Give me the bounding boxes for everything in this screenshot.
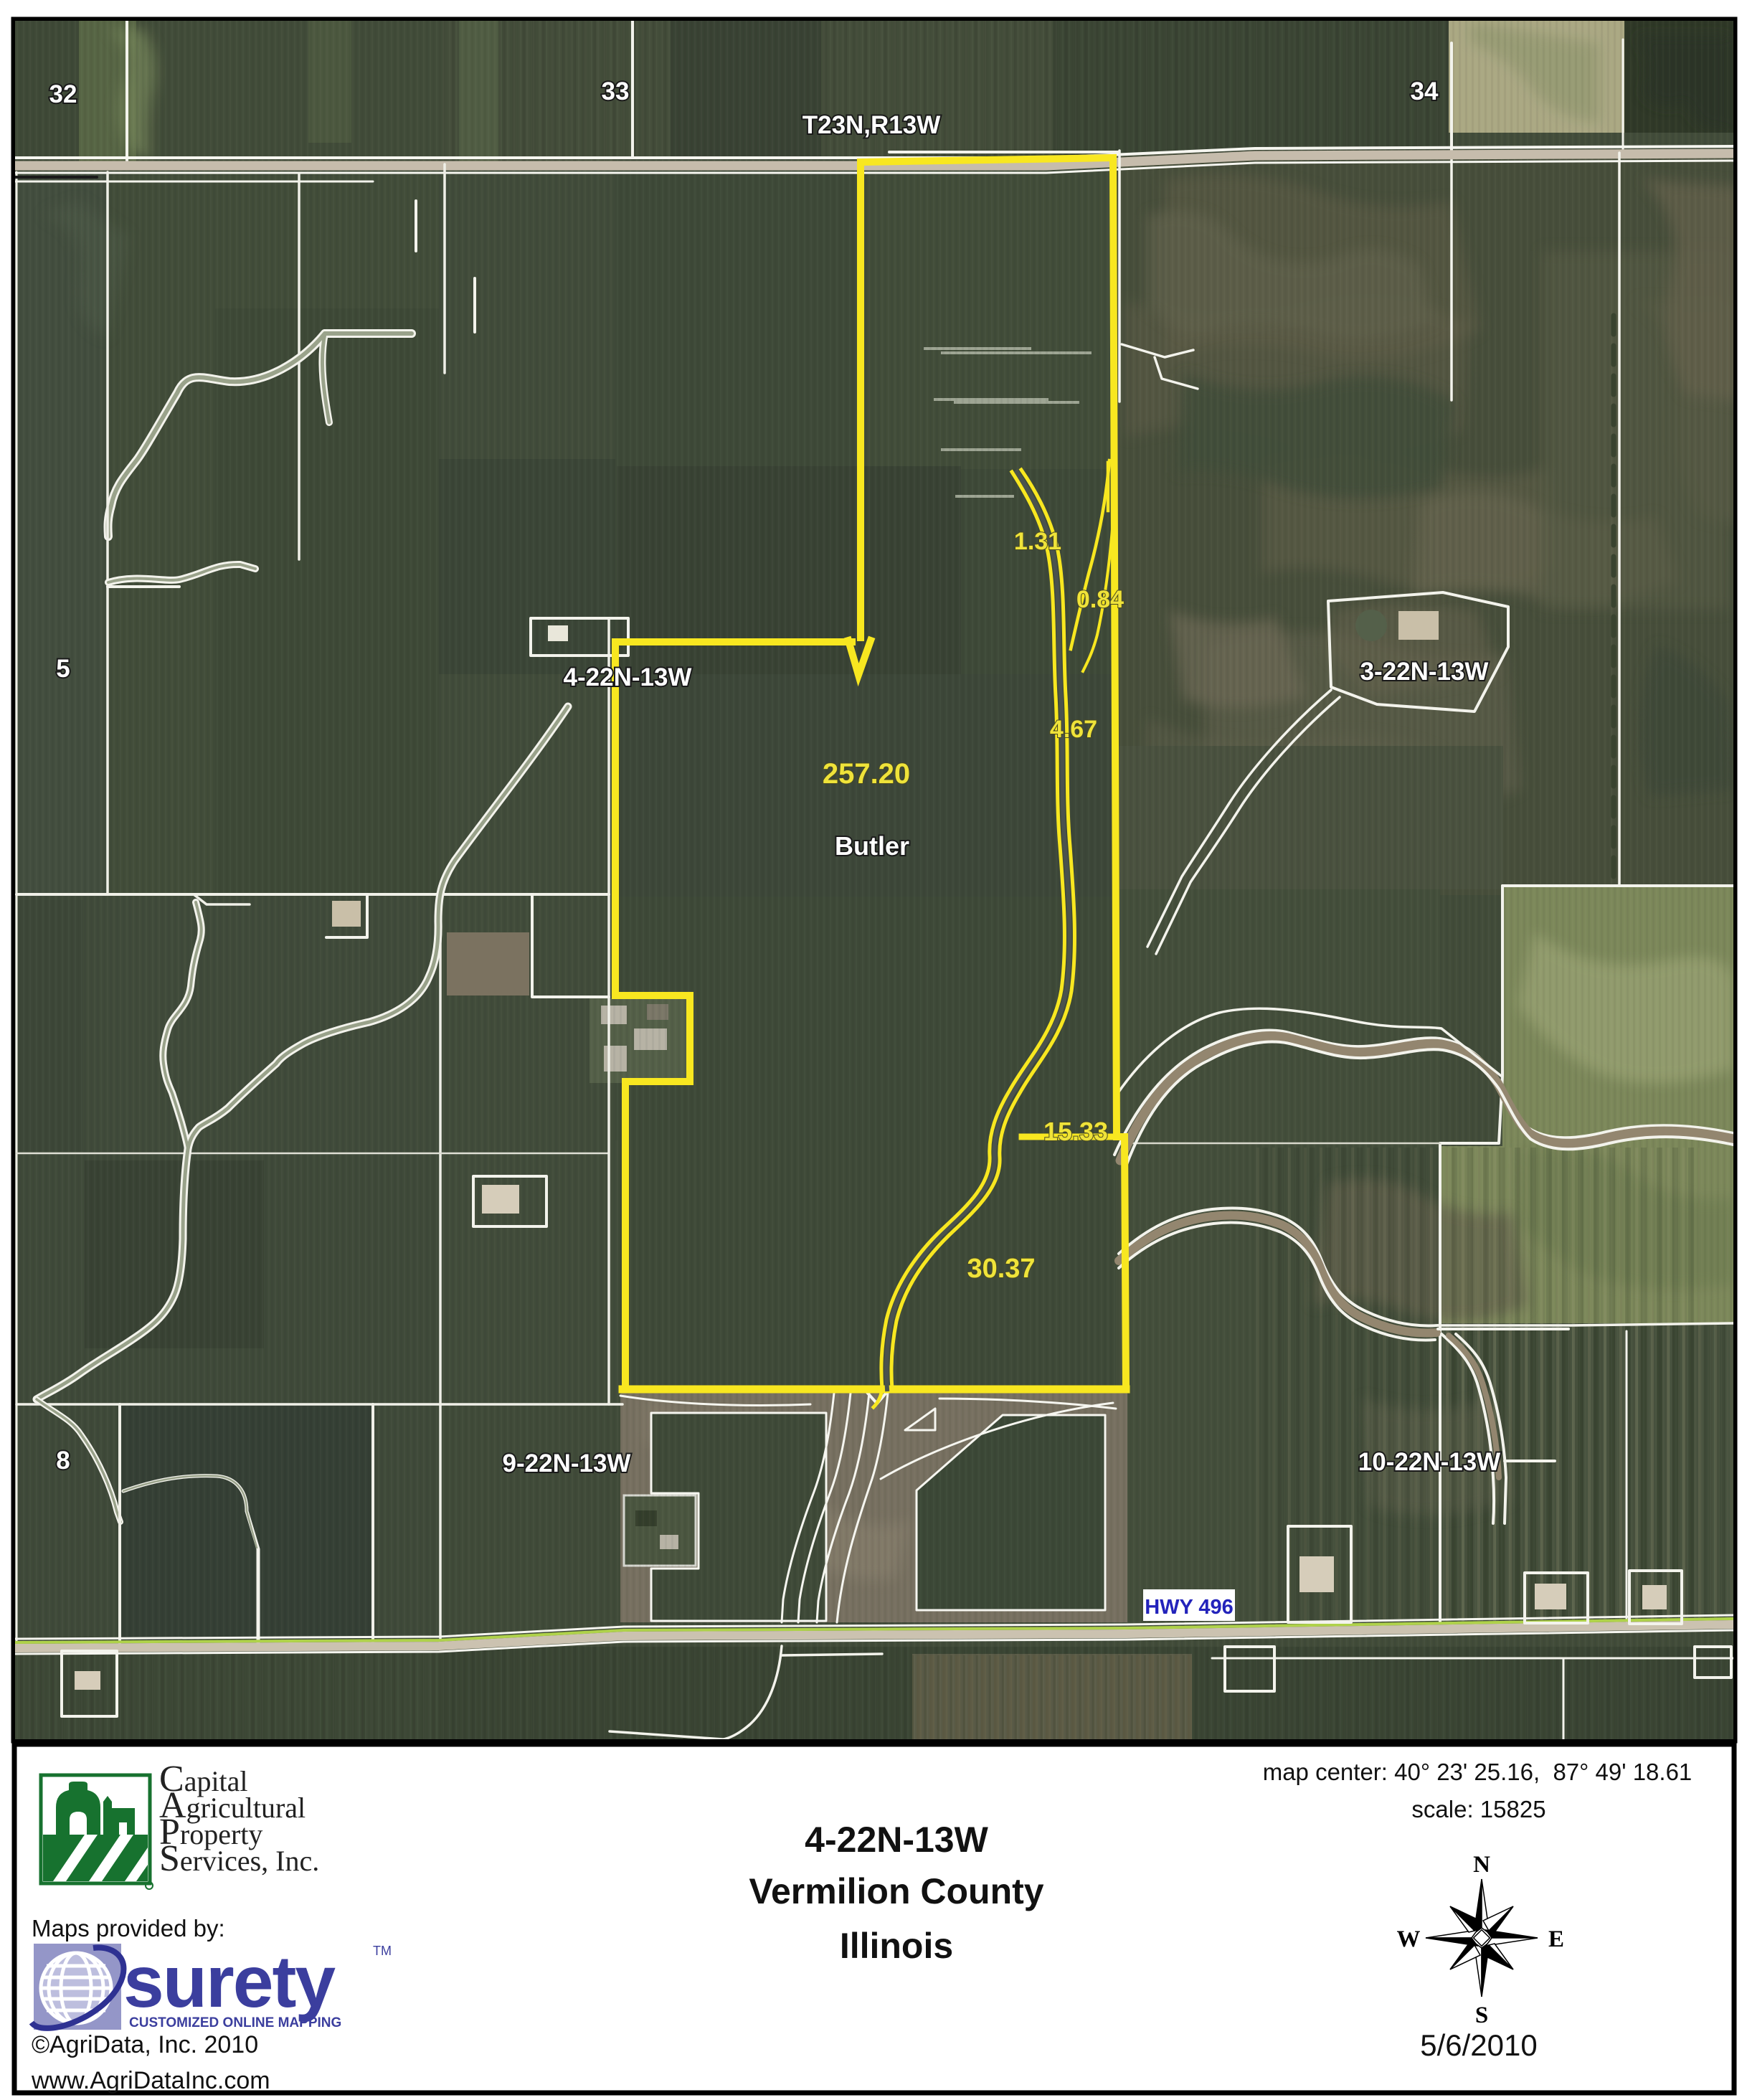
svg-text:©AgriData, Inc. 2010: ©AgriData, Inc. 2010	[32, 2031, 258, 2058]
svg-text:257.20: 257.20	[823, 758, 910, 790]
svg-text:0.84: 0.84	[1076, 586, 1124, 613]
svg-text:33: 33	[602, 77, 630, 105]
svg-text:HWY 496: HWY 496	[1145, 1596, 1234, 1619]
svg-text:Maps provided by:: Maps provided by:	[32, 1915, 225, 1941]
svg-text:map center: 40° 23' 25.16, 87: map center: 40° 23' 25.16, 87° 49' 18.61	[1263, 1759, 1692, 1785]
svg-text:E: E	[1548, 1926, 1564, 1952]
svg-text:8: 8	[56, 1447, 70, 1475]
svg-text:3-22N-13W: 3-22N-13W	[1360, 658, 1489, 686]
svg-text:Vermilion County: Vermilion County	[749, 1871, 1043, 1911]
svg-text:4.67: 4.67	[1050, 716, 1097, 743]
svg-text:Illinois: Illinois	[840, 1926, 953, 1966]
svg-text:S: S	[1475, 2002, 1488, 2028]
svg-text:30.37: 30.37	[967, 1254, 1035, 1284]
svg-text:TM: TM	[373, 1944, 392, 1958]
svg-text:32: 32	[49, 80, 77, 108]
svg-text:N: N	[1473, 1852, 1490, 1878]
svg-text:15.33: 15.33	[1043, 1117, 1108, 1146]
svg-text:10-22N-13W: 10-22N-13W	[1358, 1448, 1500, 1476]
svg-text:surety: surety	[123, 1941, 336, 2023]
svg-text:Services, Inc.: Services, Inc.	[159, 1838, 319, 1879]
svg-text:T23N,R13W: T23N,R13W	[803, 111, 941, 139]
svg-text:1.31: 1.31	[1014, 528, 1061, 555]
svg-text:5/6/2010: 5/6/2010	[1420, 2028, 1538, 2062]
svg-text:4-22N-13W: 4-22N-13W	[564, 663, 692, 691]
svg-text:Butler: Butler	[835, 831, 909, 861]
svg-text:34: 34	[1411, 77, 1439, 105]
svg-text:www.AgriDataInc.com: www.AgriDataInc.com	[31, 2067, 270, 2094]
svg-text:9-22N-13W: 9-22N-13W	[503, 1449, 631, 1477]
svg-text:5: 5	[56, 655, 70, 683]
svg-text:W: W	[1397, 1926, 1421, 1952]
svg-text:scale: 15825: scale: 15825	[1411, 1796, 1545, 1822]
svg-text:CUSTOMIZED ONLINE MAPPING: CUSTOMIZED ONLINE MAPPING	[129, 2015, 341, 2030]
svg-text:4-22N-13W: 4-22N-13W	[805, 1820, 988, 1860]
